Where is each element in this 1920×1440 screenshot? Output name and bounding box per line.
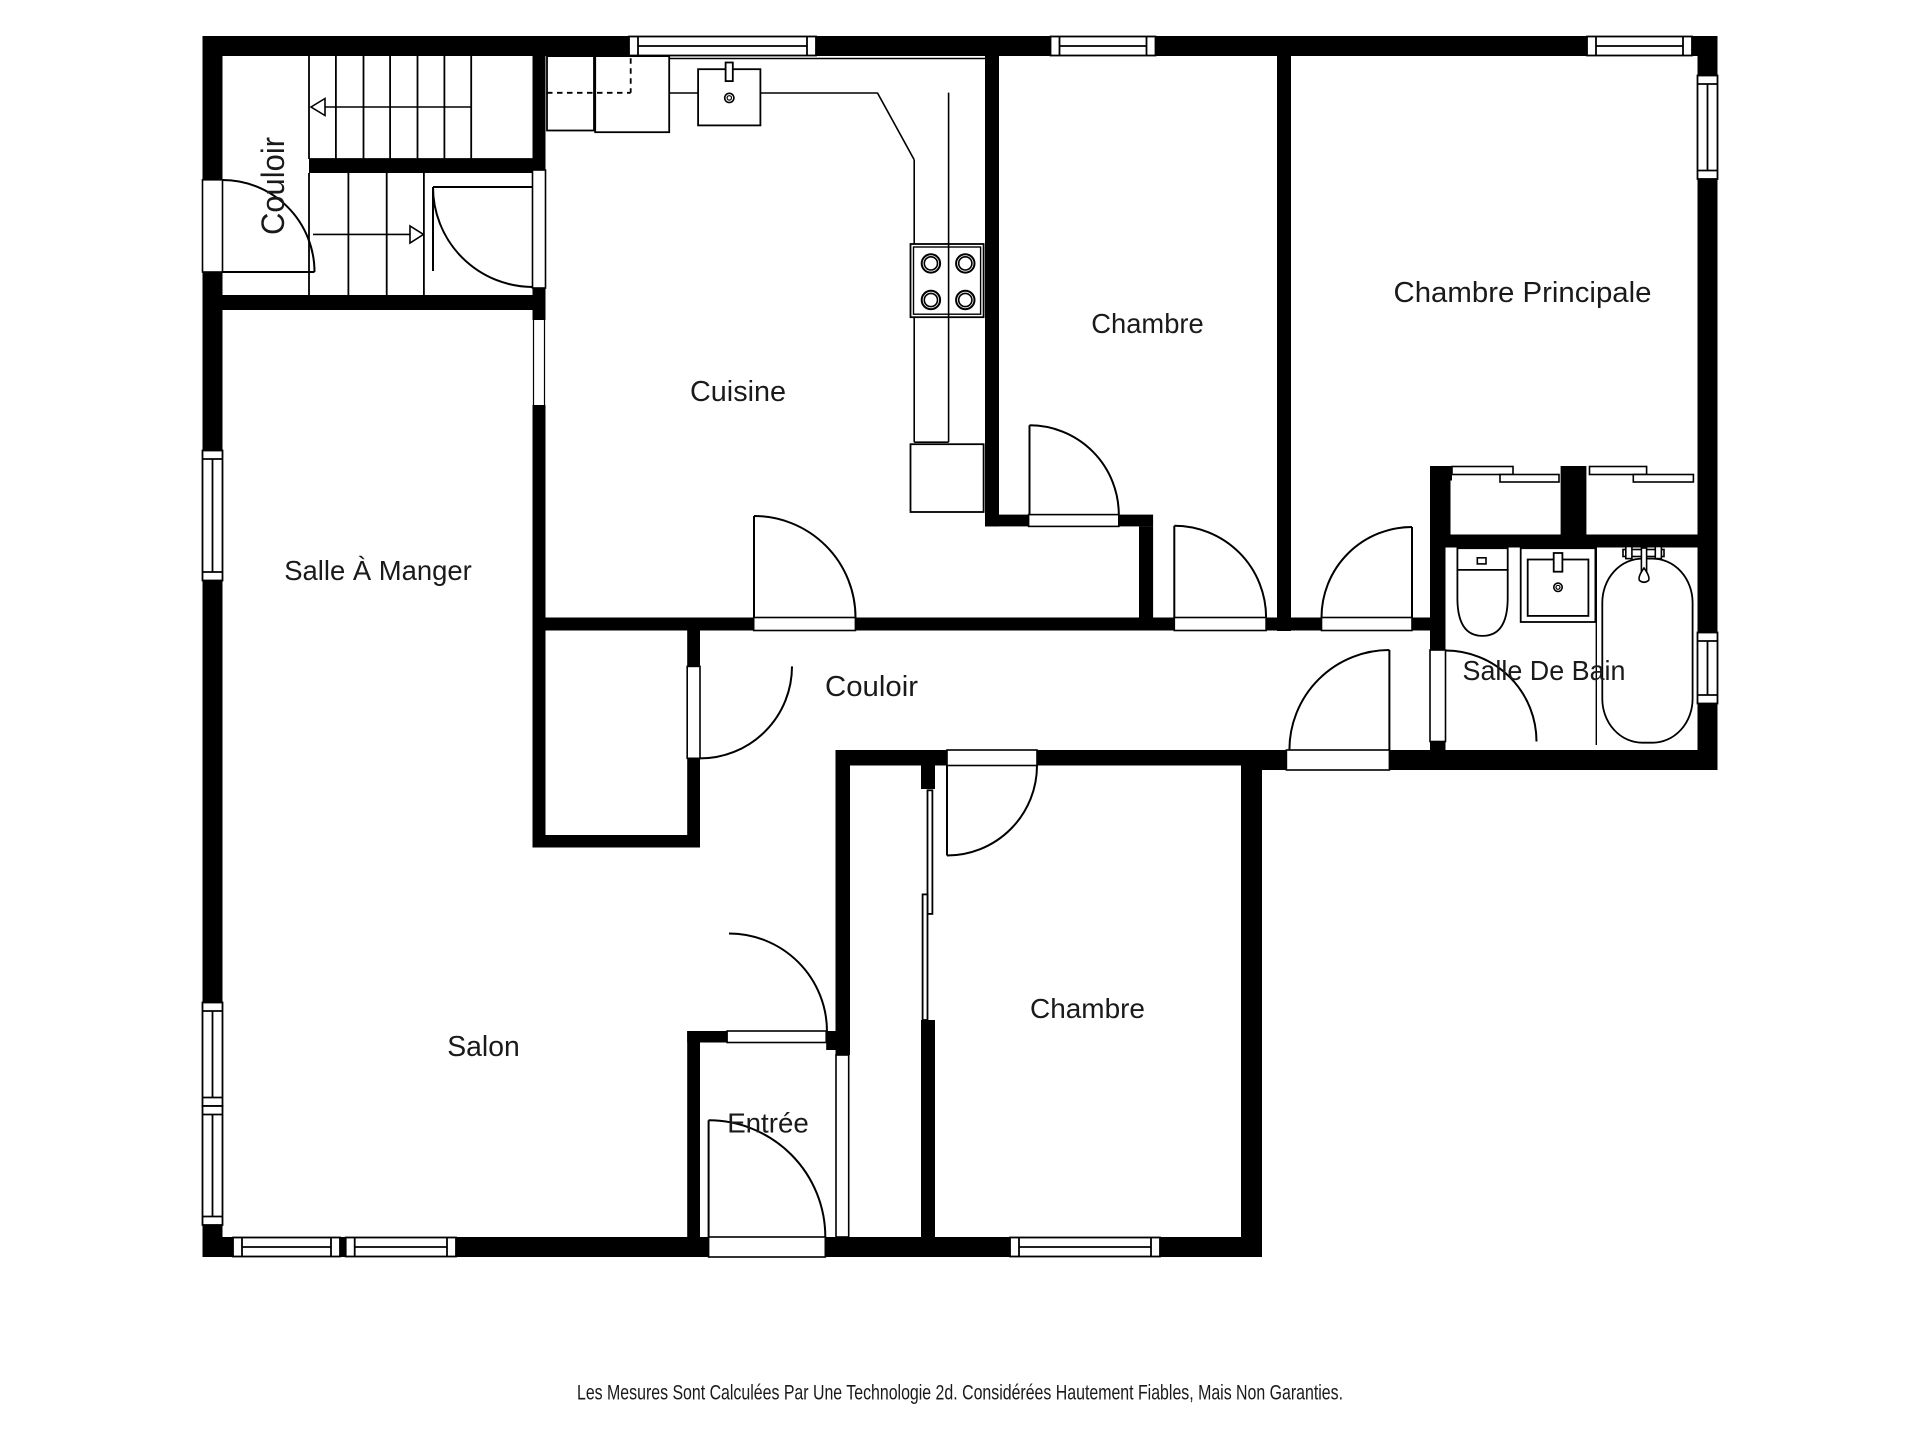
- svg-text:Couloir: Couloir: [825, 671, 918, 703]
- svg-text:Chambre: Chambre: [1030, 993, 1145, 1024]
- svg-text:Chambre Principale: Chambre Principale: [1394, 277, 1652, 309]
- svg-text:Salon: Salon: [447, 1031, 520, 1063]
- svg-text:Les Mesures Sont Calculées Par: Les Mesures Sont Calculées Par Une Techn…: [577, 1382, 1343, 1405]
- svg-text:Chambre: Chambre: [1091, 308, 1204, 339]
- svg-text:Cuisine: Cuisine: [690, 376, 786, 408]
- svg-text:Salle De Bain: Salle De Bain: [1463, 655, 1626, 686]
- svg-text:Entrée: Entrée: [727, 1108, 809, 1139]
- svg-text:Couloir: Couloir: [255, 137, 291, 235]
- svg-text:Salle À Manger: Salle À Manger: [284, 555, 472, 586]
